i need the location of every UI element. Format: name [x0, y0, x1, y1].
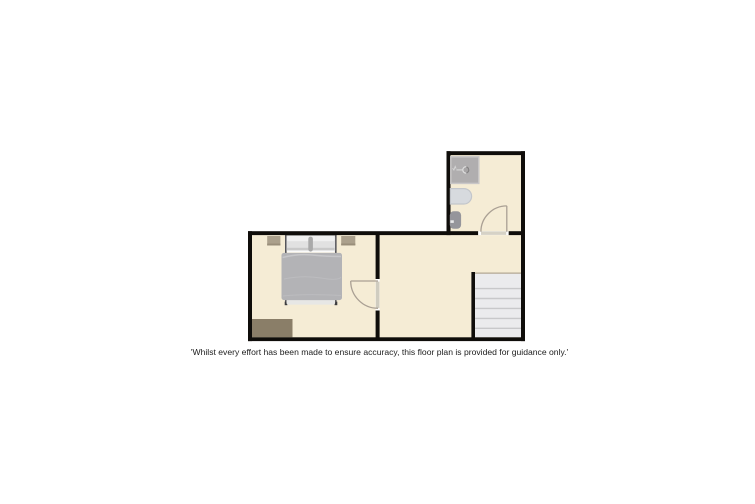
svg-text:'Whilst every effort has been: 'Whilst every effort has been made to en…	[191, 347, 569, 357]
